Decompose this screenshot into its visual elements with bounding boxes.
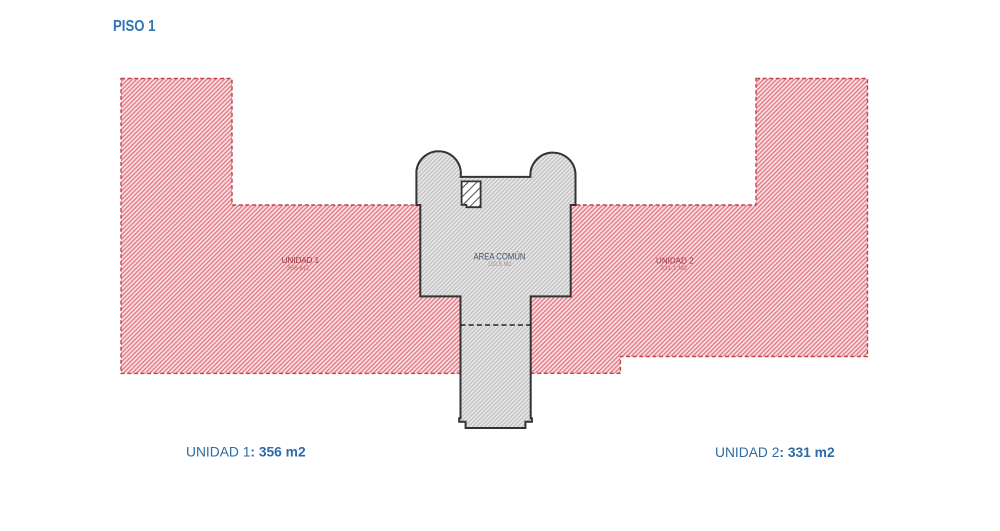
svg-text:103.5 M2: 103.5 M2: [488, 262, 513, 268]
svg-text:UNIDAD 1: UNIDAD 1: [282, 255, 320, 265]
svg-text:UNIDAD 1: 356 m2: UNIDAD 1: 356 m2: [186, 445, 306, 460]
svg-text:UNIDAD 2: UNIDAD 2: [656, 256, 694, 266]
svg-text:AREA COMÚN: AREA COMÚN: [474, 251, 526, 261]
svg-text:UNIDAD 2: 331 m2: UNIDAD 2: 331 m2: [715, 445, 835, 460]
svg-text:PISO 1: PISO 1: [113, 18, 156, 35]
svg-text:331.1 M2: 331.1 M2: [660, 266, 688, 272]
svg-text:356 M2: 356 M2: [286, 266, 310, 272]
